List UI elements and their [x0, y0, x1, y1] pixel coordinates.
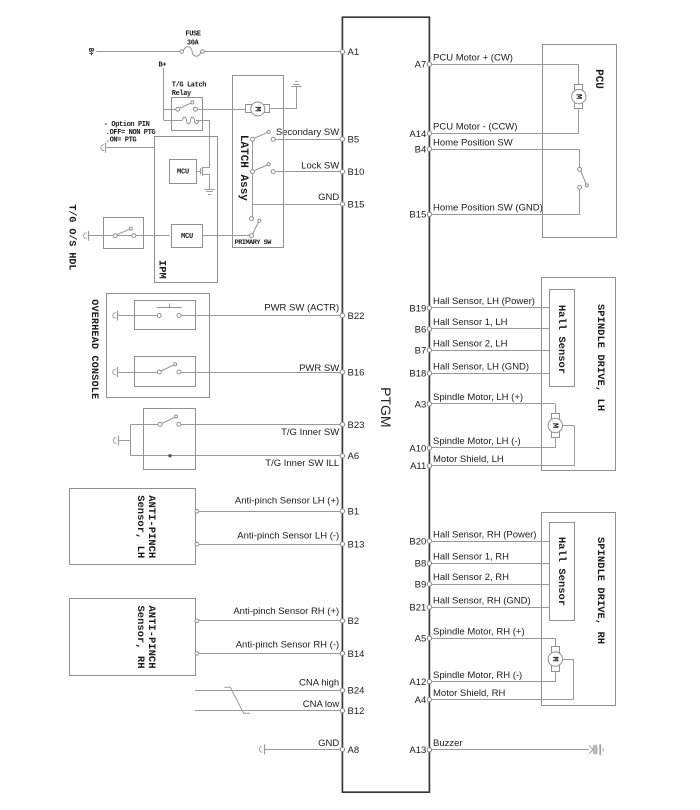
svg-text:Hall Sensor 1, LH: Hall Sensor 1, LH	[433, 317, 508, 328]
svg-text:Hall Sensor, RH (Power): Hall Sensor, RH (Power)	[433, 529, 536, 540]
svg-text:Anti-pinch Sensor RH (+): Anti-pinch Sensor RH (+)	[233, 606, 339, 617]
svg-text:MCU: MCU	[177, 169, 189, 177]
svg-text:Anti-pinch Sensor LH (-): Anti-pinch Sensor LH (-)	[237, 531, 339, 542]
svg-text:Sensor, LH: Sensor, LH	[134, 495, 146, 558]
svg-text:CNA high: CNA high	[299, 677, 339, 688]
svg-text:A13: A13	[409, 745, 426, 756]
svg-text:B14: B14	[348, 649, 365, 660]
svg-text:B5: B5	[348, 135, 360, 146]
svg-text:B15: B15	[409, 210, 426, 221]
svg-text:MCU: MCU	[181, 233, 193, 241]
svg-text:T/G O/S HDL: T/G O/S HDL	[66, 204, 78, 270]
svg-text:Hall Sensor, RH (GND): Hall Sensor, RH (GND)	[433, 595, 531, 606]
svg-text:Relay: Relay	[172, 90, 192, 98]
svg-text:PCU: PCU	[592, 69, 604, 89]
svg-text:Home Position SW (GND): Home Position SW (GND)	[433, 203, 543, 214]
svg-text:B24: B24	[348, 686, 365, 697]
svg-text:T/G Inner SW: T/G Inner SW	[281, 427, 339, 438]
svg-text:B6: B6	[415, 324, 427, 335]
svg-text:LATCH Assy: LATCH Assy	[237, 135, 249, 201]
svg-text:B15: B15	[348, 200, 365, 211]
svg-text:A10: A10	[409, 443, 426, 454]
svg-text:A6: A6	[348, 451, 360, 462]
svg-text:B10: B10	[348, 167, 365, 178]
svg-text:Sensor, RH: Sensor, RH	[134, 605, 146, 668]
svg-text:A8: A8	[348, 745, 360, 756]
svg-text:B2: B2	[348, 616, 360, 627]
svg-text:A12: A12	[409, 677, 426, 688]
svg-text:Hall Sensor 2, RH: Hall Sensor 2, RH	[433, 572, 509, 583]
svg-text:Hall Sensor 1, RH: Hall Sensor 1, RH	[433, 552, 509, 563]
svg-text:A3: A3	[415, 399, 427, 410]
svg-text:30A: 30A	[187, 40, 200, 48]
svg-text:Anti-pinch Sensor LH (+): Anti-pinch Sensor LH (+)	[235, 496, 339, 507]
svg-text:Spindle Motor, LH (+): Spindle Motor, LH (+)	[433, 392, 523, 403]
svg-text:Hall Sensor, LH (Power): Hall Sensor, LH (Power)	[433, 296, 535, 307]
svg-text:Hall Sensor: Hall Sensor	[555, 537, 567, 606]
svg-text:Lock SW: Lock SW	[301, 160, 339, 171]
svg-text:Secondary SW: Secondary SW	[276, 127, 339, 138]
svg-text:B7: B7	[415, 346, 427, 357]
svg-text:M: M	[550, 423, 560, 428]
svg-text:A4: A4	[415, 695, 427, 706]
svg-text:PCU Motor - (CCW): PCU Motor - (CCW)	[433, 122, 517, 133]
svg-text:PRIMARY SW: PRIMARY SW	[235, 239, 273, 247]
svg-text:PCU Motor + (CW): PCU Motor + (CW)	[433, 52, 513, 63]
svg-text:A11: A11	[410, 461, 426, 472]
svg-text:Buzzer: Buzzer	[433, 738, 463, 749]
svg-text:Hall Sensor 2, LH: Hall Sensor 2, LH	[433, 338, 508, 349]
svg-text:B21: B21	[409, 603, 426, 614]
svg-text:Home Position SW: Home Position SW	[433, 137, 513, 148]
svg-text:IPM: IPM	[156, 260, 168, 279]
svg-text:A1: A1	[348, 47, 360, 58]
svg-text:B18: B18	[409, 369, 426, 380]
svg-text:B16: B16	[348, 367, 365, 378]
svg-text:SPINDLE DRIVE, LH: SPINDLE DRIVE, LH	[594, 304, 606, 411]
svg-text:B+: B+	[158, 61, 166, 69]
svg-text:M: M	[550, 657, 560, 662]
svg-text:Hall Sensor, LH (GND): Hall Sensor, LH (GND)	[433, 361, 529, 372]
svg-text:Hall Sensor: Hall Sensor	[555, 305, 567, 374]
svg-text:B8: B8	[415, 559, 427, 570]
svg-text:B20: B20	[409, 537, 426, 548]
svg-text:B9: B9	[415, 579, 427, 590]
svg-text:B4: B4	[415, 145, 427, 156]
svg-text:T/G Latch: T/G Latch	[172, 82, 206, 90]
svg-text:FUSE: FUSE	[185, 31, 200, 39]
svg-text:B19: B19	[409, 303, 426, 314]
svg-text:B1: B1	[348, 507, 360, 518]
svg-text:PTGM: PTGM	[378, 387, 394, 427]
svg-text:B12: B12	[348, 706, 365, 717]
svg-text:B13: B13	[348, 539, 365, 550]
svg-text:Spindle Motor, RH (+): Spindle Motor, RH (+)	[433, 626, 525, 637]
svg-text:B22: B22	[348, 311, 365, 322]
svg-text:M: M	[252, 106, 262, 111]
svg-text:T/G Inner SW ILL: T/G Inner SW ILL	[265, 458, 339, 469]
svg-text:OVERHEAD CONSOLE: OVERHEAD CONSOLE	[88, 299, 99, 399]
svg-text:CNA low: CNA low	[303, 699, 340, 710]
svg-text:A14: A14	[409, 129, 426, 140]
svg-text:A7: A7	[415, 60, 427, 71]
svg-text:M: M	[573, 94, 583, 99]
svg-text:SPINDLE DRIVE, RH: SPINDLE DRIVE, RH	[594, 537, 606, 644]
svg-text:.ON= PTG: .ON= PTG	[106, 136, 137, 144]
svg-text:GND: GND	[318, 738, 339, 749]
svg-text:Anti-pinch Sensor RH (-): Anti-pinch Sensor RH (-)	[236, 640, 339, 651]
svg-text:Motor Shield, LH: Motor Shield, LH	[433, 454, 504, 465]
svg-text:A5: A5	[415, 634, 427, 645]
svg-text:Spindle Motor, RH (-): Spindle Motor, RH (-)	[433, 670, 522, 681]
svg-text:B23: B23	[348, 420, 365, 431]
svg-text:Motor Shield, RH: Motor Shield, RH	[433, 688, 505, 699]
svg-text:Spindle Motor, LH (-): Spindle Motor, LH (-)	[433, 436, 521, 447]
svg-text:PWR SW (ACTR): PWR SW (ACTR)	[264, 303, 339, 314]
svg-text:GND: GND	[318, 192, 339, 203]
svg-text:B+: B+	[86, 48, 94, 56]
